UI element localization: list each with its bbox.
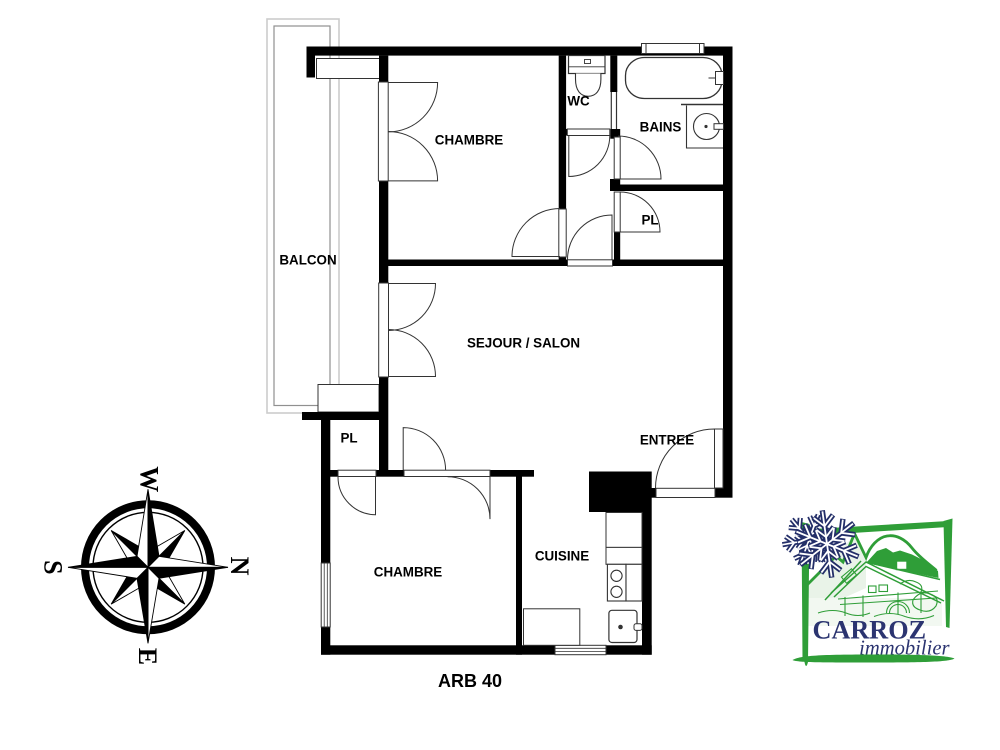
svg-text:PL: PL [340,431,357,446]
svg-text:W: W [135,466,164,492]
svg-text:ARB 40: ARB 40 [438,671,502,691]
svg-text:WC: WC [567,94,590,109]
svg-text:N: N [225,557,254,576]
svg-text:PL: PL [641,213,658,228]
svg-text:CUISINE: CUISINE [535,549,589,564]
svg-text:S: S [39,560,68,574]
svg-text:BALCON: BALCON [279,253,336,268]
svg-text:SEJOUR / SALON: SEJOUR / SALON [467,336,580,351]
svg-text:CHAMBRE: CHAMBRE [435,133,504,148]
svg-text:immobilier: immobilier [859,638,950,660]
svg-text:CHAMBRE: CHAMBRE [374,565,443,580]
svg-text:BAINS: BAINS [640,120,682,135]
svg-text:ENTREE: ENTREE [640,433,694,448]
svg-text:E: E [133,648,162,665]
